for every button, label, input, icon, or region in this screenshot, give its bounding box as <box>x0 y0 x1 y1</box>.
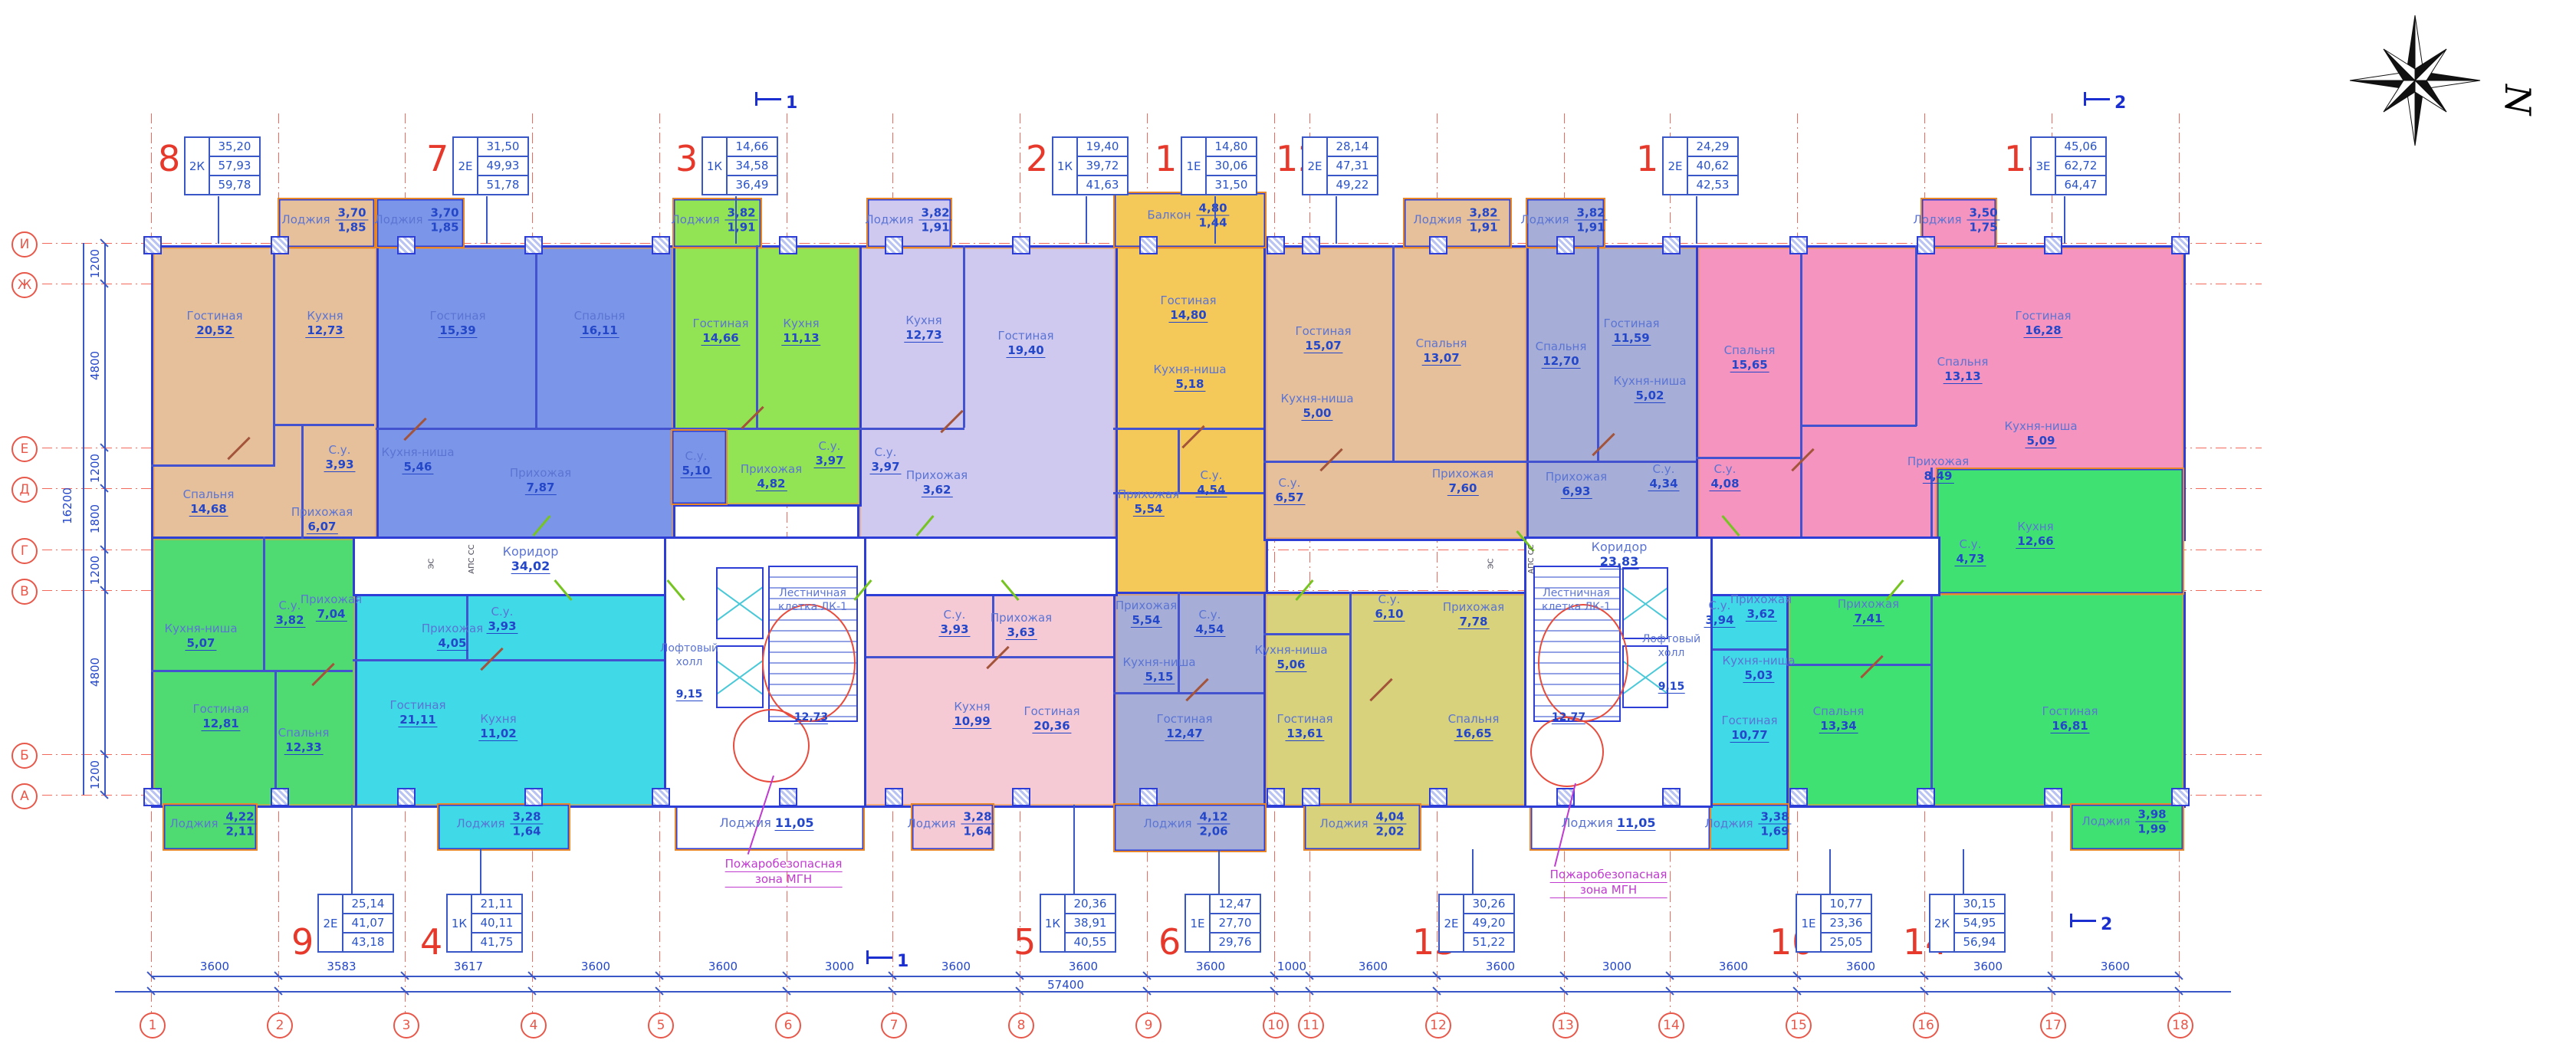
room-area: 5,07 <box>164 635 237 651</box>
dimension-value: 3600 <box>941 960 971 973</box>
dimension-value: 4800 <box>88 351 102 380</box>
wall-pilaster <box>1429 236 1447 254</box>
mgn-safety-circle <box>762 604 856 722</box>
wall-pilaster <box>1556 236 1575 254</box>
room-name: Прихожая <box>510 466 571 480</box>
room-label-loggia: Лоджия3,821,91 <box>1520 206 1607 235</box>
apartment-6-stamp-number: 6 <box>1158 924 1181 960</box>
room-name: Спальня <box>1448 712 1500 726</box>
room-area: 16,65 <box>1448 726 1500 741</box>
room-area: 12,73 <box>305 323 344 338</box>
apartment-total-area: 56,94 <box>1955 932 2004 951</box>
room-area: 10,99 <box>952 714 991 729</box>
room-label-loggia: Лоджия3,981,99 <box>2081 808 2168 836</box>
room-name: Гостиная <box>692 317 748 330</box>
room-area: 13,34 <box>1813 718 1865 733</box>
apartment-total-area: 42,53 <box>1688 175 1737 194</box>
wall-pilaster <box>779 236 797 254</box>
room-label-kitchen-niche: Кухня-ниша5,06 <box>1254 643 1327 672</box>
room-name: С.у. <box>324 443 355 457</box>
room-label-loggia: Лоджия3,821,91 <box>865 206 951 235</box>
room-label-hallway: Прихожая7,60 <box>1432 467 1493 496</box>
stamp-leader-line <box>2064 196 2065 244</box>
wall-pilaster <box>397 788 416 806</box>
room-name: Лоджия <box>374 213 422 227</box>
dimension-value: 3000 <box>1602 960 1631 973</box>
dimension-value: 3600 <box>200 960 229 973</box>
section-marker-tick <box>755 92 757 106</box>
room-name: Прихожая <box>1730 592 1792 606</box>
room-name: Спальня <box>1724 343 1776 357</box>
room-area: 14,80 <box>1160 307 1216 323</box>
room-label-loggia: Лоджия3,501,75 <box>1913 206 1999 235</box>
partition-wall <box>857 428 964 430</box>
room-area: 7,87 <box>510 480 571 495</box>
apartment-total-area: 41,63 <box>1078 175 1127 194</box>
room-area-fraction: 3,821,91 <box>1575 206 1608 235</box>
core-loggia-label: Лоджия 11,05 <box>1561 815 1655 830</box>
staircase-label: Лестничная <box>1543 587 1610 599</box>
room-area: 5,18 <box>1153 376 1226 392</box>
room-label-bathroom: С.у.3,97 <box>813 439 845 468</box>
column-axis-bubble-15: 15 <box>1786 1012 1812 1039</box>
room-area-fraction: 3,981,99 <box>2136 808 2169 836</box>
apartment-living-area: 25,14 <box>343 895 393 913</box>
wall-pilaster <box>1139 788 1158 806</box>
row-axis-bubble-И: И <box>11 231 38 258</box>
stamp-leader-line <box>1218 851 1220 894</box>
dimension-value: 1000 <box>1277 960 1306 973</box>
apartment-total-area: 49,22 <box>1328 175 1377 194</box>
wall-pilaster <box>271 788 289 806</box>
wall-pilaster <box>397 236 416 254</box>
row-axis-bubble-А: А <box>11 783 38 809</box>
room-name: Прихожая <box>301 592 362 606</box>
dimension-value: 3600 <box>581 960 610 973</box>
room-label-hallway: Прихожая5,54 <box>1115 599 1177 628</box>
room-label-kitchen: Кухня10,99 <box>952 700 991 729</box>
apartment-9-stamp: 2Е25,1441,0743,18 <box>317 894 394 953</box>
room-name: С.у. <box>1194 608 1225 622</box>
room-area: 21,11 <box>389 712 445 727</box>
room-area: 8,49 <box>1907 468 1969 484</box>
apartment-3-stamp: 1К14,6634,5836,49 <box>701 136 778 195</box>
apartment-living-area: 45,06 <box>2056 138 2105 156</box>
room-label-hallway: Прихожая7,04 <box>301 592 362 622</box>
column-axis-bubble-17: 17 <box>2040 1012 2066 1039</box>
room-name: Гостиная <box>186 309 242 323</box>
room-label-bathroom: С.у.3,93 <box>938 608 970 637</box>
section-marker-label: 2 <box>2101 915 2112 934</box>
room-name: Кухня-ниша <box>1722 654 1795 668</box>
apartment-living-area: 24,29 <box>1688 138 1737 156</box>
room-name: Гостиная <box>1024 704 1079 718</box>
room-name: Лоджия <box>281 213 330 227</box>
wall-pilaster <box>652 236 670 254</box>
dimension-value: 3600 <box>1846 960 1875 973</box>
apartment-14-annex <box>1936 468 2184 595</box>
partition-wall <box>353 659 664 661</box>
room-name: С.у. <box>938 608 970 622</box>
column-axis-bubble-7: 7 <box>881 1012 907 1039</box>
apartment-living-area: 14,66 <box>728 138 777 156</box>
stamp-leader-line <box>1336 196 1337 244</box>
room-area: 6,10 <box>1373 606 1405 622</box>
room-label-bedroom: Спальня15,65 <box>1724 343 1776 372</box>
room-name: Спальня <box>278 726 330 740</box>
room-area: 13,61 <box>1276 726 1332 741</box>
room-area: 12,47 <box>1156 726 1212 741</box>
fire-safe-zone-label: Пожаробезопаснаязона МГН <box>725 857 843 888</box>
room-label-hallway: Прихожая3,62 <box>1730 592 1792 622</box>
room-label-hallway: Прихожая6,07 <box>291 505 353 534</box>
room-area: 10,77 <box>1721 727 1777 743</box>
room-area: 5,00 <box>1280 405 1353 421</box>
partition-wall <box>1113 428 1263 430</box>
apartment-7-stamp-number: 7 <box>426 141 449 176</box>
room-label-living-room: Гостиная16,28 <box>2015 309 2071 338</box>
room-label-bedroom: Спальня13,07 <box>1416 336 1467 366</box>
room-label-loggia: Лоджия3,821,91 <box>1413 206 1500 235</box>
apartment-6-stamp: 1Е12,4727,7029,76 <box>1184 894 1261 953</box>
room-area: 11,02 <box>478 726 517 741</box>
room-name: С.у. <box>486 605 517 619</box>
tech-label-aps-ss: АПС СС <box>468 544 476 574</box>
apartment-4-stamp-number: 4 <box>420 924 442 960</box>
wall-pilaster <box>1917 788 1935 806</box>
apartment-type: 2Е <box>1664 138 1688 194</box>
partition-wall <box>263 536 265 672</box>
dimension-line <box>115 991 2231 993</box>
room-label-hallway: Прихожая8,49 <box>1907 454 1969 484</box>
compass-north-label: N <box>2497 84 2538 116</box>
apartment-8-stamp-number: 8 <box>158 141 180 176</box>
room-label-hallway: Прихожая3,62 <box>906 468 968 497</box>
dimension-value: 3600 <box>1719 960 1748 973</box>
elevator-shaft <box>716 645 764 708</box>
room-name: Гостиная <box>389 698 445 712</box>
room-area-fraction: 4,801,44 <box>1197 202 1230 230</box>
row-axis-bubble-Б: Б <box>11 743 38 769</box>
room-area: 15,65 <box>1724 357 1776 372</box>
room-area: 5,09 <box>2004 433 2077 448</box>
room-label-hallway: Прихожая7,78 <box>1443 600 1504 629</box>
apartment-type: 1К <box>703 138 728 194</box>
apartment-2-stamp: 1К19,4039,7241,63 <box>1052 136 1129 195</box>
room-name: С.у. <box>1648 462 1679 476</box>
apartment-total-area: 51,22 <box>1464 932 1513 951</box>
section-marker-label: 1 <box>897 952 909 971</box>
room-label-bathroom: С.у.3,97 <box>869 445 901 474</box>
loft-hall-label: холл <box>1658 647 1685 659</box>
room-name: Кухня-ниша <box>1280 392 1353 405</box>
room-label-kitchen: Кухня11,13 <box>781 317 820 346</box>
room-name: Гостиная <box>1721 714 1777 727</box>
wall-pilaster <box>143 236 162 254</box>
dimension-value: 3600 <box>1359 960 1388 973</box>
stamp-leader-line <box>735 196 737 244</box>
wall-pilaster <box>2171 788 2190 806</box>
room-area: 4,82 <box>741 476 802 491</box>
apartment-total-area: 29,76 <box>1211 932 1260 951</box>
room-area: 11,59 <box>1603 330 1659 346</box>
stamp-leader-line <box>486 196 488 244</box>
partition-wall <box>1392 245 1395 462</box>
row-axis-bubble-Г: Г <box>11 538 38 564</box>
apartment-total-area: 43,18 <box>343 932 393 951</box>
room-label-hallway: Прихожая5,54 <box>1118 487 1179 517</box>
room-name: С.у. <box>1373 592 1405 606</box>
apartment-7-stamp: 2Е31,5049,9351,78 <box>452 136 529 195</box>
wall-pilaster <box>1917 236 1935 254</box>
room-name: С.у. <box>680 449 711 463</box>
room-area: 6,07 <box>291 519 353 534</box>
room-name: Прихожая <box>1838 597 1899 611</box>
section-marker-bar <box>2070 920 2096 922</box>
dimension-value: 1200 <box>88 248 102 277</box>
apartment-total-area: 64,47 <box>2056 175 2105 194</box>
row-axis-bubble-В: В <box>11 579 38 605</box>
room-name: Прихожая <box>1546 470 1607 484</box>
apartment-4-stamp: 1К21,1140,1141,75 <box>446 894 523 953</box>
apartment-living-area: 21,11 <box>472 895 521 913</box>
loft-hall-area: 9,15 <box>676 688 703 701</box>
wall-pilaster <box>1139 236 1158 254</box>
room-label-kitchen-niche: Кухня-ниша5,02 <box>1613 374 1686 403</box>
apartment-area: 49,20 <box>1464 913 1513 932</box>
apartment-area: 39,72 <box>1078 156 1127 175</box>
dimension-value: 1200 <box>88 453 102 482</box>
section-marker-bar <box>2084 98 2110 100</box>
mgn-safety-circle <box>1530 717 1604 787</box>
column-axis-bubble-9: 9 <box>1135 1012 1161 1039</box>
room-label-living-room: Гостиная11,59 <box>1603 317 1659 346</box>
room-name: Прихожая <box>291 505 353 519</box>
room-name: Кухня-ниша <box>2004 419 2077 433</box>
room-name: Гостиная <box>429 309 485 323</box>
room-label-bedroom: Спальня12,33 <box>278 726 330 755</box>
room-area: 5,15 <box>1122 669 1195 684</box>
room-label-hallway: Прихожая4,82 <box>741 462 802 491</box>
room-area: 15,39 <box>429 323 485 338</box>
room-area: 4,05 <box>422 635 483 651</box>
room-label-bathroom: С.у.4,08 <box>1709 462 1740 491</box>
room-label-loggia: Лоджия3,381,69 <box>1704 810 1791 838</box>
room-area: 4,54 <box>1195 482 1227 497</box>
room-label-living-room: Гостиная10,77 <box>1721 714 1777 743</box>
tech-label-es: ЭС <box>427 559 435 569</box>
room-label-bathroom: С.у.6,10 <box>1373 592 1405 622</box>
staircase-label: клетка ЛК-1 <box>1542 601 1611 613</box>
row-axis-bubble-Е: Е <box>11 436 38 462</box>
room-label-kitchen: Кухня11,02 <box>478 712 517 741</box>
loft-hall-label: Лофтовый <box>660 642 718 655</box>
room-area: 3,97 <box>869 459 901 474</box>
room-area: 16,11 <box>574 323 626 338</box>
room-area: 3,93 <box>486 619 517 634</box>
wall-pilaster <box>524 236 543 254</box>
partition-wall <box>535 245 537 428</box>
row-axis-bubble-Д: Д <box>11 477 38 503</box>
wall-pilaster <box>1662 788 1681 806</box>
apartment-total-area: 31,50 <box>1207 175 1256 194</box>
room-area: 20,36 <box>1024 718 1079 733</box>
apartment-total-area: 41,75 <box>472 932 521 951</box>
room-area: 5,10 <box>680 463 711 478</box>
apartment-total-area: 51,78 <box>478 175 527 194</box>
room-label-loggia: Лоджия3,701,85 <box>374 206 461 235</box>
apartment-type: 2Е <box>454 138 478 194</box>
partition-wall <box>1800 245 1802 536</box>
room-name: Спальня <box>1416 336 1467 350</box>
room-name: Прихожая <box>1115 599 1177 612</box>
room-area: 5,06 <box>1254 657 1327 672</box>
wall-pilaster <box>1789 236 1808 254</box>
room-area-fraction: 4,122,06 <box>1198 810 1230 838</box>
room-area: 5,54 <box>1115 612 1177 628</box>
partition-wall <box>1597 245 1599 462</box>
apartment-area: 30,06 <box>1207 156 1256 175</box>
column-axis-bubble-11: 11 <box>1298 1012 1324 1039</box>
wall-pilaster <box>1012 788 1030 806</box>
room-label-bedroom: Спальня16,11 <box>574 309 626 338</box>
wall-pilaster <box>1302 236 1320 254</box>
apartment-type: 2К <box>186 138 210 194</box>
room-label-hallway: Прихожая6,93 <box>1546 470 1607 499</box>
partition-wall <box>151 670 353 672</box>
apartment-living-area: 31,50 <box>478 138 527 156</box>
partition-wall <box>1263 633 1352 635</box>
room-area: 7,60 <box>1432 481 1493 496</box>
apartment-total-area: 40,55 <box>1066 932 1115 951</box>
room-name: Спальня <box>1813 704 1865 718</box>
compass-rose: N <box>2331 8 2545 161</box>
wall-pilaster <box>1662 236 1681 254</box>
room-name: Гостиная <box>1603 317 1659 330</box>
stamp-leader-line <box>1963 849 1964 894</box>
room-name: Лоджия <box>169 817 218 831</box>
column-axis-bubble-10: 10 <box>1263 1012 1289 1039</box>
wall-pilaster <box>1302 788 1320 806</box>
room-name: Кухня <box>904 313 943 327</box>
room-area: 12,33 <box>278 740 330 755</box>
partition-wall <box>756 245 758 428</box>
room-label-living-room: Гостиная12,47 <box>1156 712 1212 741</box>
column-axis-bubble-12: 12 <box>1425 1012 1451 1039</box>
room-label-bathroom: С.у.3,93 <box>324 443 355 472</box>
room-name: Кухня-ниша <box>1122 655 1195 669</box>
room-name: Гостиная <box>1156 712 1212 726</box>
room-label-living-room: Гостиная15,39 <box>429 309 485 338</box>
room-name: Лоджия <box>907 817 955 831</box>
overall-height-dimension: 16200 <box>61 487 74 524</box>
wall-pilaster <box>779 788 797 806</box>
mgn-safety-circle <box>1538 604 1628 722</box>
apartment-living-area: 30,26 <box>1464 895 1513 913</box>
apartment-14-stamp: 2К30,1554,9556,94 <box>1929 894 2006 953</box>
wall-pilaster <box>1429 788 1447 806</box>
apartment-8-stamp: 2К35,2057,9359,78 <box>184 136 261 195</box>
room-area: 16,81 <box>2042 718 2098 733</box>
room-label-kitchen-niche: Кухня-ниша5,09 <box>2004 419 2077 448</box>
room-label-living-room: Гостиная12,81 <box>192 702 248 731</box>
room-area: 19,40 <box>997 343 1053 358</box>
apartment-type: 2Е <box>1303 138 1328 194</box>
apartment-living-area: 30,15 <box>1955 895 2004 913</box>
column-axis-bubble-2: 2 <box>267 1012 293 1039</box>
dimension-line <box>151 976 2179 977</box>
room-area-fraction: 3,821,91 <box>1467 206 1500 235</box>
partition-wall <box>1696 457 1802 459</box>
apartment-area: 27,70 <box>1211 913 1260 932</box>
room-name: Лоджия <box>1704 817 1753 831</box>
apartment-15-stamp: 3Е45,0662,7264,47 <box>2030 136 2107 195</box>
section-marker-tick <box>866 950 869 964</box>
fire-safe-zone-label: Пожаробезопаснаязона МГН <box>1550 868 1667 898</box>
apartment-living-area: 10,77 <box>1822 895 1871 913</box>
wall-pilaster <box>885 236 903 254</box>
apartment-living-area: 12,47 <box>1211 895 1260 913</box>
row-axis-bubble-Ж: Ж <box>11 272 38 298</box>
elevator-shaft <box>716 567 764 639</box>
section-marker-label: 2 <box>2114 94 2126 113</box>
apartment-total-area: 36,49 <box>728 175 777 194</box>
room-area: 13,07 <box>1416 350 1467 366</box>
room-name: С.у. <box>1273 476 1305 490</box>
room-name: Лоджия <box>1413 213 1461 227</box>
apartment-living-area: 20,36 <box>1066 895 1115 913</box>
room-name: Прихожая <box>422 622 483 635</box>
room-area: 3,93 <box>938 622 970 637</box>
apartment-living-area: 14,80 <box>1207 138 1256 156</box>
dimension-value: 3600 <box>1196 960 1225 973</box>
room-area: 14,66 <box>692 330 748 346</box>
room-label-kitchen-niche: Кухня-ниша5,07 <box>164 622 237 651</box>
partition-wall <box>376 428 671 430</box>
room-label-loggia: Лоджия3,701,85 <box>281 206 368 235</box>
room-name: С.у. <box>1954 537 1986 551</box>
dimension-value: 1200 <box>88 555 102 584</box>
room-name: Лоджия <box>456 817 504 831</box>
apartment-area: 40,62 <box>1688 156 1737 175</box>
apartment-area: 57,93 <box>210 156 259 175</box>
column-axis-bubble-16: 16 <box>1913 1012 1939 1039</box>
stamp-leader-line <box>1073 805 1075 894</box>
room-label-bathroom: С.у.6,57 <box>1273 476 1305 505</box>
dimension-line <box>83 243 84 795</box>
apartment-area: 54,95 <box>1955 913 2004 932</box>
stamp-leader-line <box>480 849 481 894</box>
room-name: Гостиная <box>997 329 1053 343</box>
room-area-fraction: 4,042,02 <box>1374 810 1407 838</box>
staircase-area: 12,77 <box>1552 711 1585 724</box>
room-label-kitchen: Кухня12,66 <box>2016 520 2055 549</box>
room-name: Прихожая <box>1907 454 1969 468</box>
dimension-value: 1200 <box>88 760 102 789</box>
elevator-shaft <box>1622 567 1668 639</box>
room-name: Кухня-ниша <box>1613 374 1686 388</box>
apartment-type: 2Е <box>319 895 343 951</box>
dimension-value: 3600 <box>1069 960 1098 973</box>
loft-hall-label: холл <box>676 656 703 668</box>
section-marker-bar <box>755 98 781 100</box>
room-area-fraction: 3,701,85 <box>429 206 462 235</box>
tech-label-aps-ss: АПС СС <box>1527 544 1536 574</box>
apartment-living-area: 35,20 <box>210 138 259 156</box>
apartment-living-area: 19,40 <box>1078 138 1127 156</box>
room-area: 3,63 <box>991 625 1052 640</box>
room-label-hallway: Прихожая7,87 <box>510 466 571 495</box>
